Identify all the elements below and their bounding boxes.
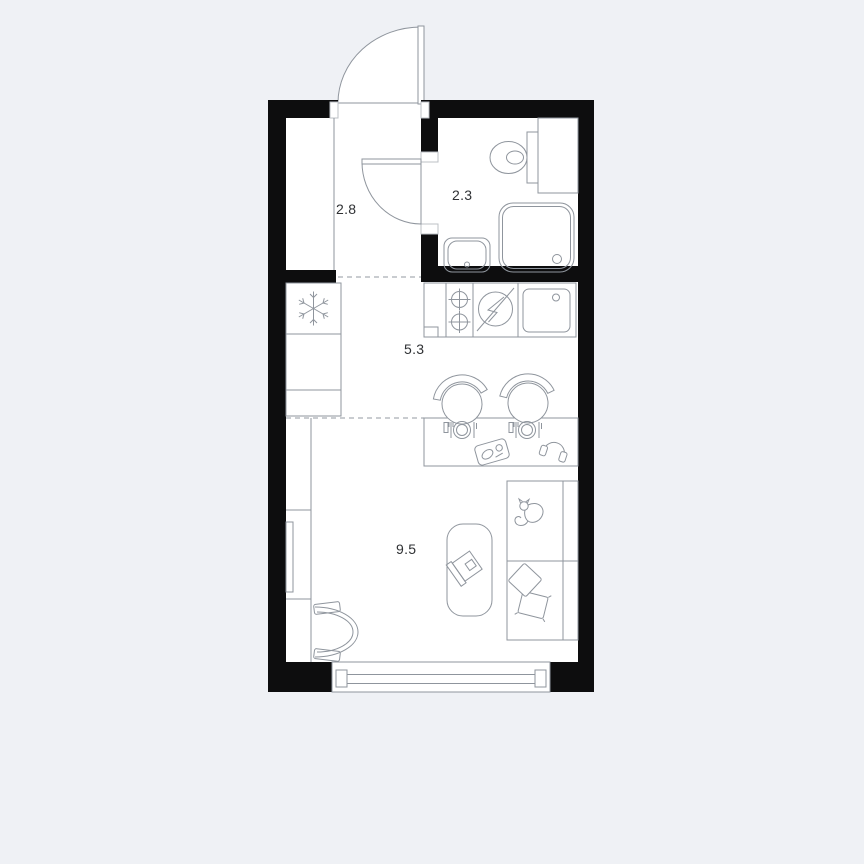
wall-top-right <box>421 100 594 118</box>
bathroom-jamb-bottom <box>421 224 438 234</box>
hallway-area-label: 2.8 <box>336 201 356 217</box>
entrance-jamb-left <box>330 102 338 118</box>
kitchen-area-label: 5.3 <box>404 341 424 357</box>
wall-left <box>268 100 286 692</box>
wall-hallway-stub <box>268 270 336 283</box>
window-cap-left <box>336 670 347 687</box>
wall-top-left <box>268 100 338 118</box>
bathroom-jamb-top <box>421 152 438 162</box>
entrance-door <box>338 26 424 104</box>
wall-right <box>578 100 594 692</box>
floor-plan-drawing <box>0 0 864 864</box>
entrance-jamb-right <box>421 102 429 118</box>
window-cap-right <box>535 670 546 687</box>
wall-bottom-left <box>268 662 332 692</box>
window <box>332 662 550 692</box>
bathroom-area-label: 2.3 <box>452 187 472 203</box>
living-room-area-label: 9.5 <box>396 541 416 557</box>
wall-bathroom-bottom <box>421 266 594 282</box>
wall-bottom-right <box>550 662 594 692</box>
floor-plan-canvas: 2.8 2.3 5.3 9.5 <box>0 0 864 864</box>
